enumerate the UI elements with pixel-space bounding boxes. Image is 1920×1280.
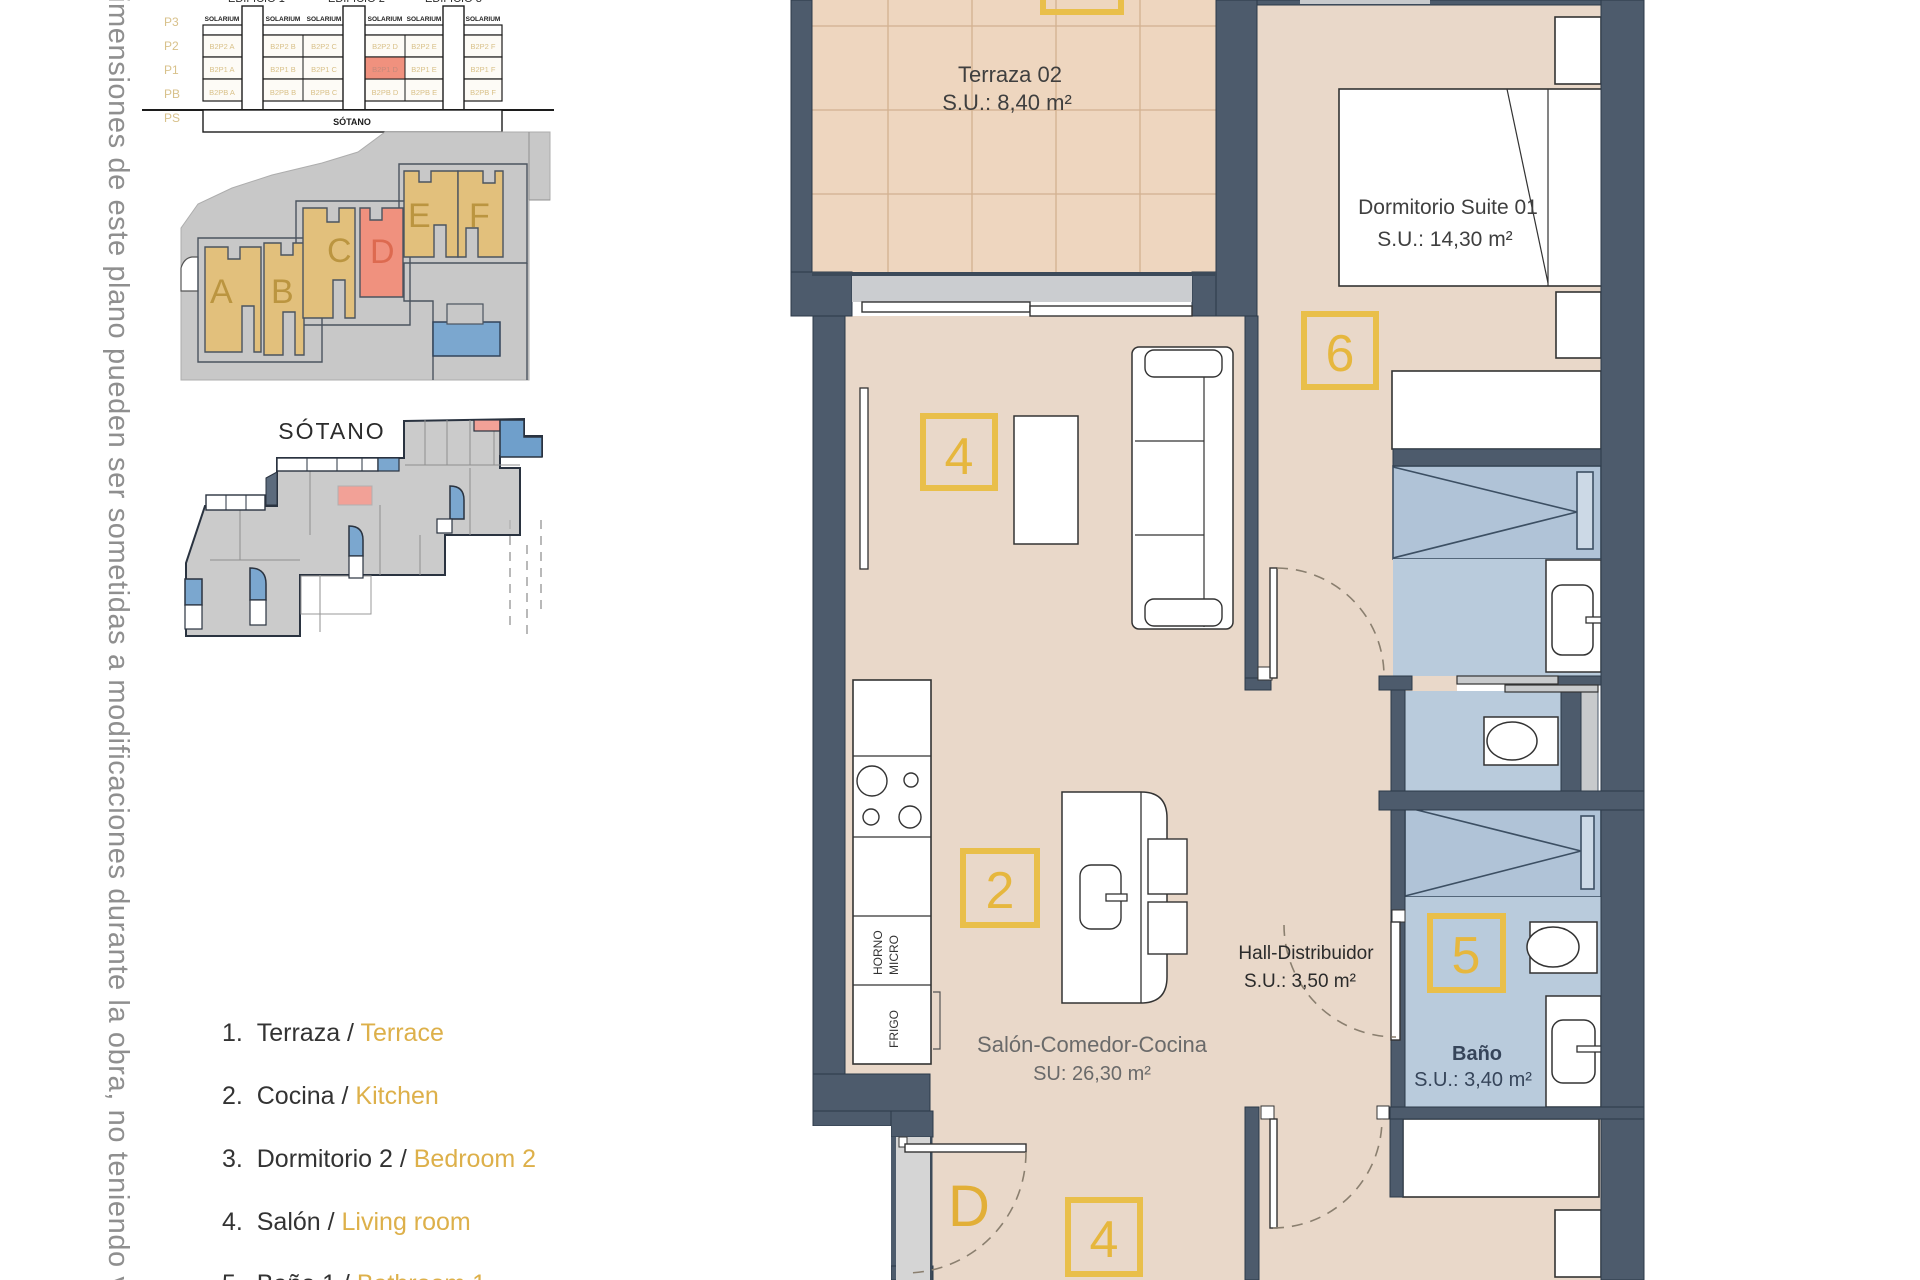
svg-text:PS: PS <box>164 111 180 125</box>
svg-text:MICRO: MICRO <box>887 935 901 975</box>
svg-text:imensiones de este plano puede: imensiones de este plano pueden ser some… <box>102 0 134 1280</box>
svg-text:5. Baño 1 / Bathroom 1: 5. Baño 1 / Bathroom 1 <box>222 1270 486 1280</box>
svg-text:B2P1 E: B2P1 E <box>411 65 436 74</box>
svg-text:SOLARIUM: SOLARIUM <box>307 16 342 23</box>
svg-text:Salón-Comedor-Cocina: Salón-Comedor-Cocina <box>977 1032 1208 1057</box>
svg-text:SÓTANO: SÓTANO <box>278 418 385 444</box>
svg-text:B2PB D: B2PB D <box>372 88 399 97</box>
svg-text:S.U.: 14,30 m²: S.U.: 14,30 m² <box>1377 228 1512 251</box>
svg-text:B: B <box>271 273 294 311</box>
svg-text:EDIFICIO 2: EDIFICIO 2 <box>328 0 385 5</box>
svg-text:Baño: Baño <box>1452 1043 1502 1065</box>
svg-text:SOLARIUM: SOLARIUM <box>466 16 501 23</box>
svg-text:1. Terraza / Terrace: 1. Terraza / Terrace <box>222 1019 444 1047</box>
svg-text:B2P2 B: B2P2 B <box>270 42 295 51</box>
svg-text:Terraza 02: Terraza 02 <box>958 62 1062 87</box>
svg-text:EDIFICIO 3: EDIFICIO 3 <box>425 0 482 5</box>
svg-text:B2PB B: B2PB B <box>270 88 296 97</box>
svg-text:SOLARIUM: SOLARIUM <box>368 16 403 23</box>
svg-text:P3: P3 <box>164 15 179 29</box>
svg-text:6: 6 <box>1326 325 1355 383</box>
svg-text:A: A <box>210 273 233 311</box>
svg-text:PB: PB <box>164 87 180 101</box>
svg-text:B2P1 B: B2P1 B <box>270 65 295 74</box>
svg-text:B2P1 D: B2P1 D <box>372 65 398 74</box>
svg-text:B2P1 C: B2P1 C <box>311 65 337 74</box>
svg-text:EDIFICIO 1: EDIFICIO 1 <box>228 0 285 5</box>
svg-text:B2PB A: B2PB A <box>209 88 235 97</box>
svg-text:5: 5 <box>1452 927 1481 985</box>
svg-text:SU: 26,30 m²: SU: 26,30 m² <box>1033 1063 1151 1085</box>
svg-text:Dormitorio Suite 01: Dormitorio Suite 01 <box>1358 196 1538 219</box>
svg-text:C: C <box>327 232 352 270</box>
svg-text:B2P2 F: B2P2 F <box>470 42 495 51</box>
svg-text:D: D <box>948 1174 990 1239</box>
svg-text:3. Dormitorio 2 / Bedroom 2: 3. Dormitorio 2 / Bedroom 2 <box>222 1145 536 1173</box>
svg-text:B2PB F: B2PB F <box>470 88 496 97</box>
svg-text:SOLARIUM: SOLARIUM <box>266 16 301 23</box>
svg-text:B2P1 A: B2P1 A <box>209 65 234 74</box>
svg-text:B2P2 C: B2P2 C <box>311 42 337 51</box>
svg-text:B2PB C: B2PB C <box>311 88 338 97</box>
svg-text:4: 4 <box>1090 1211 1119 1269</box>
svg-text:SOLARIUM: SOLARIUM <box>205 16 240 23</box>
svg-text:S.U.: 3,40 m²: S.U.: 3,40 m² <box>1414 1069 1532 1091</box>
svg-text:Hall-Distribuidor: Hall-Distribuidor <box>1238 943 1374 964</box>
svg-text:P2: P2 <box>164 39 179 53</box>
svg-text:D: D <box>370 233 395 271</box>
svg-text:B2P2 A: B2P2 A <box>209 42 234 51</box>
svg-text:P1: P1 <box>164 63 179 77</box>
svg-text:SÓTANO: SÓTANO <box>333 116 371 127</box>
svg-text:B2P2 E: B2P2 E <box>411 42 436 51</box>
svg-text:2. Cocina / Kitchen: 2. Cocina / Kitchen <box>222 1082 439 1110</box>
svg-text:B2P2 D: B2P2 D <box>372 42 398 51</box>
svg-text:S.U.: 8,40 m²: S.U.: 8,40 m² <box>942 90 1072 115</box>
svg-text:FRIGO: FRIGO <box>887 1010 901 1048</box>
svg-text:B2P1 F: B2P1 F <box>470 65 495 74</box>
svg-text:S.U.: 3,50 m²: S.U.: 3,50 m² <box>1244 971 1356 992</box>
svg-text:2: 2 <box>986 862 1015 920</box>
svg-text:SOLARIUM: SOLARIUM <box>407 16 442 23</box>
svg-text:E: E <box>408 197 431 235</box>
svg-text:HORNO: HORNO <box>871 930 885 975</box>
svg-text:4. Salón / Living room: 4. Salón / Living room <box>222 1208 471 1236</box>
svg-text:B2PB E: B2PB E <box>411 88 437 97</box>
svg-text:4: 4 <box>945 428 974 486</box>
svg-text:F: F <box>469 197 490 235</box>
